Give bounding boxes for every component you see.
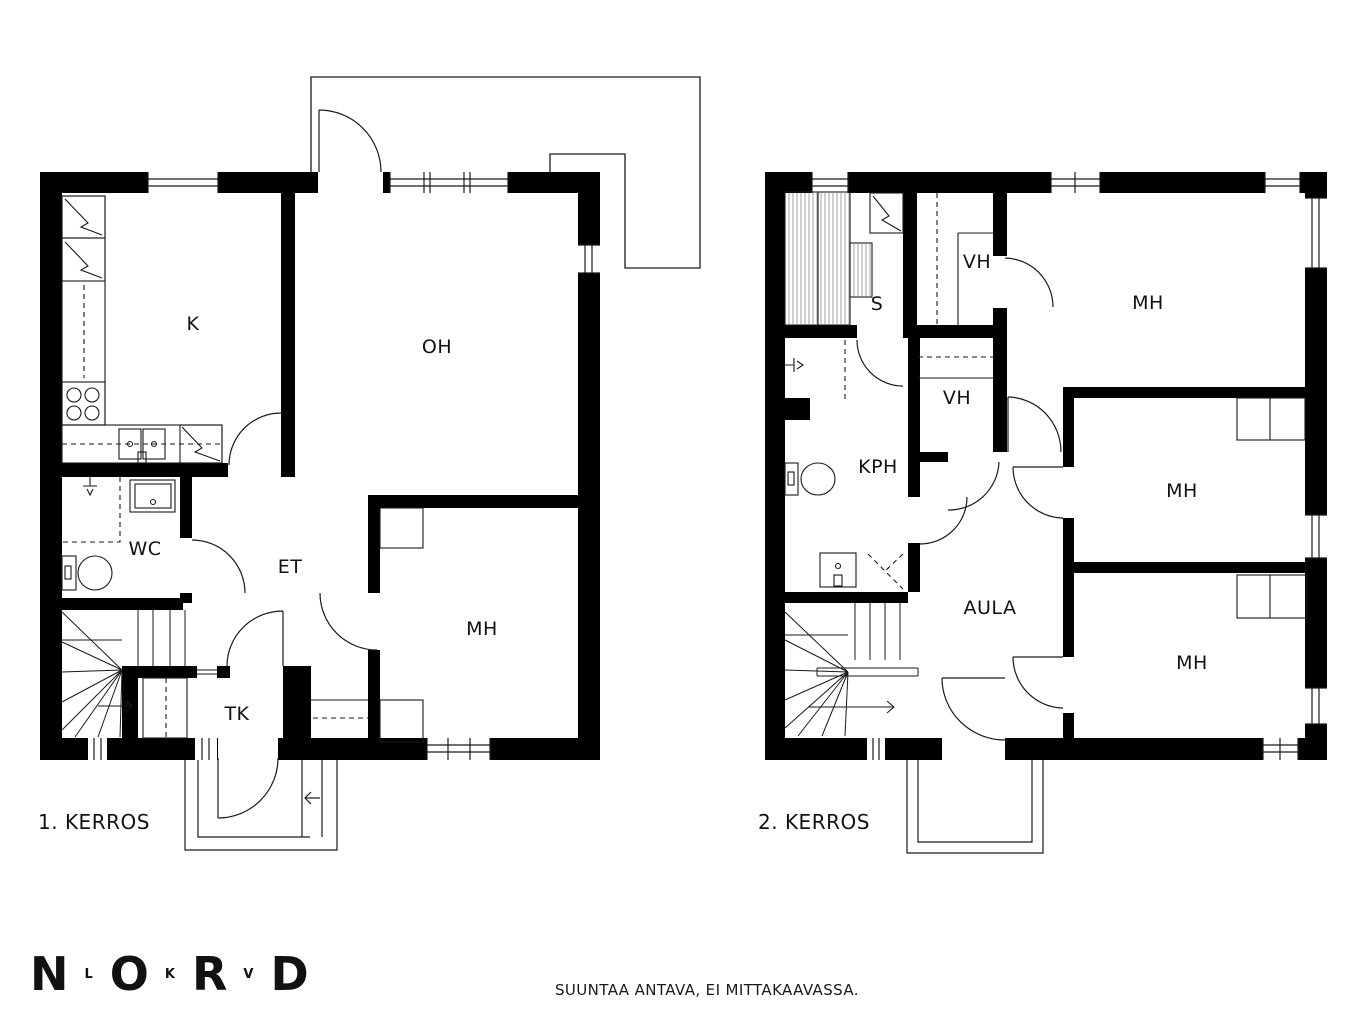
logo-letter-d: D — [270, 951, 307, 997]
nord-logo: N L O K R V D — [30, 952, 308, 996]
floor1-plan: K OH WC ET MH TK 1. KERROS — [38, 77, 700, 850]
room-label-aula: AULA — [964, 597, 1017, 619]
room-label-kph: KPH — [858, 456, 898, 478]
room-label-mh-f1: MH — [466, 618, 498, 640]
room-label-mh-mid: MH — [1166, 480, 1198, 502]
floor2-stairs — [785, 603, 918, 736]
disclaimer-text: SUUNTAA ANTAVA, EI MITTAKAAVASSA. — [555, 981, 859, 999]
room-label-mh-bottom: MH — [1176, 652, 1208, 674]
room-label-tk: TK — [223, 703, 249, 725]
room-label-vh-mid: VH — [943, 387, 971, 409]
logo-letter-k: K — [165, 968, 175, 981]
logo-letter-n: N — [30, 951, 68, 997]
floor1-title: 1. KERROS — [38, 810, 150, 834]
floor2-closet-lines — [918, 193, 993, 378]
logo-letter-l: L — [85, 968, 93, 981]
floorplan-page: K OH WC ET MH TK 1. KERROS — [0, 0, 1366, 1025]
room-label-et: ET — [278, 556, 303, 578]
floor2-plan: S VH VH KPH AULA MH MH MH 2. KERROS — [758, 172, 1327, 853]
room-label-oh: OH — [422, 336, 452, 358]
logo-letter-r: R — [192, 951, 226, 997]
logo-letter-o: O — [110, 951, 148, 997]
floor1-walls — [40, 172, 600, 760]
floor-plans-svg: K OH WC ET MH TK 1. KERROS — [0, 0, 1366, 1025]
room-label-vh-top: VH — [963, 251, 991, 273]
floor1-entrance-canopy — [185, 760, 337, 850]
floor1-wc-fixtures — [62, 477, 175, 590]
room-label-wc: WC — [128, 538, 161, 560]
floor2-title: 2. KERROS — [758, 810, 870, 834]
floor2-balcony — [907, 760, 1043, 853]
room-label-s: S — [871, 293, 884, 315]
floor2-beds — [1237, 398, 1307, 618]
room-label-k: K — [187, 313, 200, 335]
floor2-sauna-fixtures — [785, 192, 903, 325]
room-label-mh-top: MH — [1132, 292, 1164, 314]
logo-letter-v: V — [243, 968, 253, 981]
